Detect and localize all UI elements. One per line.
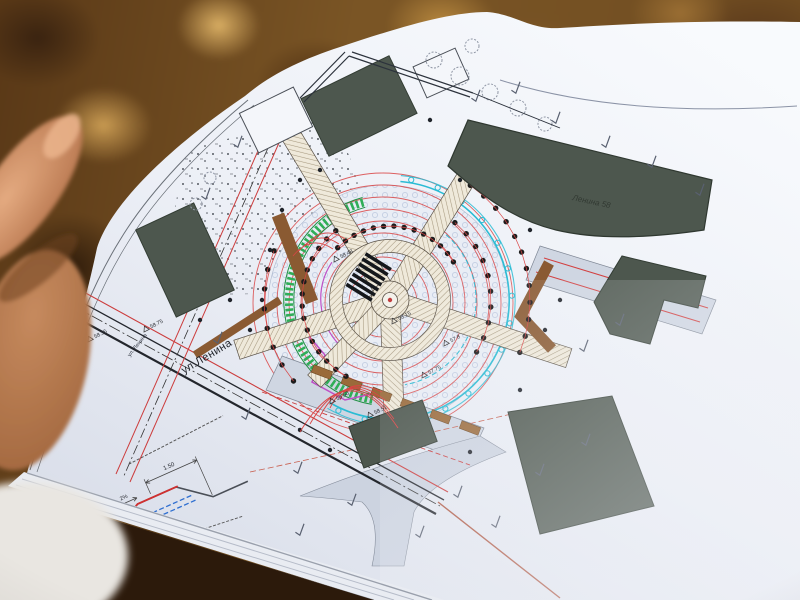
defocus-overlay xyxy=(380,280,800,600)
photo-of-site-plan: Ленина 58 58.7558.3558.1558.4858.5058.51… xyxy=(0,0,800,600)
photo-composition: Ленина 58 58.7558.3558.1558.4858.5058.51… xyxy=(0,0,800,600)
